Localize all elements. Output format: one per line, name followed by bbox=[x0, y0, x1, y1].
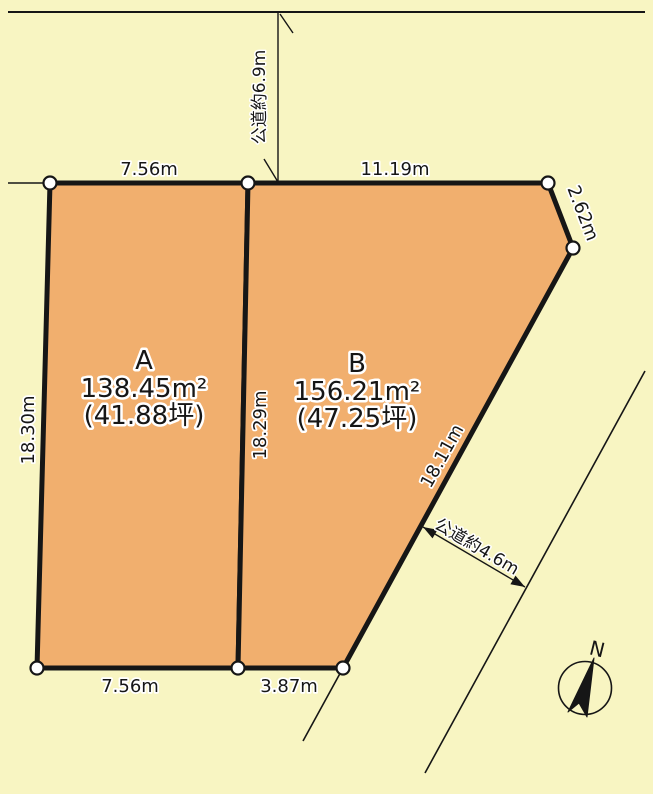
dimension-tick-bottom bbox=[264, 159, 278, 182]
parcel-a-area-tsubo: (41.88坪) bbox=[84, 401, 205, 431]
dimension-b-top-width: 11.19m bbox=[360, 159, 429, 180]
corner-marker-nw bbox=[44, 177, 57, 190]
dimension-shared-boundary-depth: 18.29m bbox=[250, 390, 271, 459]
compass: N bbox=[559, 636, 612, 717]
dimension-b-bottom-width: 3.87m bbox=[260, 676, 318, 697]
corner-marker-n-mid bbox=[242, 177, 255, 190]
parcel-b-area-sqm: 156.21m² bbox=[294, 377, 421, 407]
parcel-a-area-sqm: 138.45m² bbox=[81, 374, 208, 404]
land-plot-diagram: 7.56m 11.19m 2.62m 18.30m 18.29m 18.11m … bbox=[0, 0, 653, 794]
corner-marker-cut bbox=[567, 242, 580, 255]
dimension-a-bottom-width: 7.56m bbox=[101, 676, 159, 697]
north-road-label: 公道約6.9m bbox=[250, 50, 270, 145]
corner-marker-ne bbox=[542, 177, 555, 190]
parcel-b-label: B bbox=[348, 349, 366, 379]
parcel-a-label: A bbox=[135, 346, 153, 376]
plot-svg: 7.56m 11.19m 2.62m 18.30m 18.29m 18.11m … bbox=[0, 0, 653, 794]
corner-marker-se bbox=[337, 662, 350, 675]
parcel-b-area-tsubo: (47.25坪) bbox=[297, 404, 418, 434]
dimension-tick-top bbox=[280, 14, 293, 33]
corner-marker-sw bbox=[31, 662, 44, 675]
compass-north-label: N bbox=[587, 636, 607, 663]
corner-marker-s-mid bbox=[232, 662, 245, 675]
compass-north-needle-icon bbox=[568, 658, 594, 717]
southeast-road-label: 公道約4.6m bbox=[431, 515, 523, 580]
dimension-a-top-width: 7.56m bbox=[120, 159, 178, 180]
dimension-a-left-depth: 18.30m bbox=[18, 395, 39, 464]
